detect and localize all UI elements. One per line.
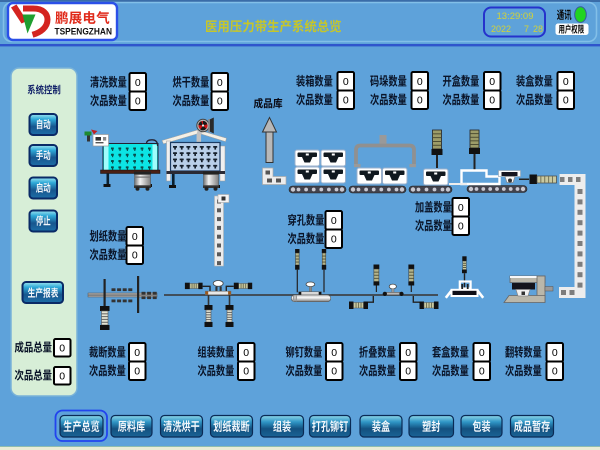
svg-text:0: 0 [243,365,249,377]
svg-text:0: 0 [134,365,140,377]
svg-text:0: 0 [59,370,65,382]
svg-text:0: 0 [343,76,349,88]
svg-text:0: 0 [563,94,569,106]
svg-text:0: 0 [135,77,141,89]
svg-text:0: 0 [417,76,423,88]
svg-text:0: 0 [479,365,485,377]
svg-text:0: 0 [563,76,569,88]
svg-text:0: 0 [135,95,141,107]
svg-text:0: 0 [405,347,411,359]
svg-text:0: 0 [217,95,223,107]
svg-text:0: 0 [552,347,558,359]
svg-text:0: 0 [479,347,485,359]
svg-text:0: 0 [59,342,65,354]
svg-text:13:29:09: 13:29:09 [497,11,534,22]
svg-text:0: 0 [217,77,223,89]
svg-text:28: 28 [533,24,543,34]
svg-text:0: 0 [331,233,337,245]
svg-text:0: 0 [331,215,337,227]
svg-text:TSPENGZHAN: TSPENGZHAN [55,27,113,37]
svg-text:0: 0 [132,249,138,261]
svg-text:0: 0 [243,347,249,359]
svg-text:7: 7 [524,24,529,34]
svg-text:0: 0 [417,94,423,106]
svg-text:0: 0 [458,220,464,232]
svg-text:0: 0 [552,365,558,377]
svg-text:2022: 2022 [491,24,511,34]
svg-text:0: 0 [132,231,138,243]
svg-text:0: 0 [489,76,495,88]
svg-text:0: 0 [343,94,349,106]
svg-text:0: 0 [489,94,495,106]
svg-text:0: 0 [331,365,337,377]
svg-text:0: 0 [405,365,411,377]
svg-text:0: 0 [134,347,140,359]
svg-text:0: 0 [331,347,337,359]
svg-text:0: 0 [458,202,464,214]
